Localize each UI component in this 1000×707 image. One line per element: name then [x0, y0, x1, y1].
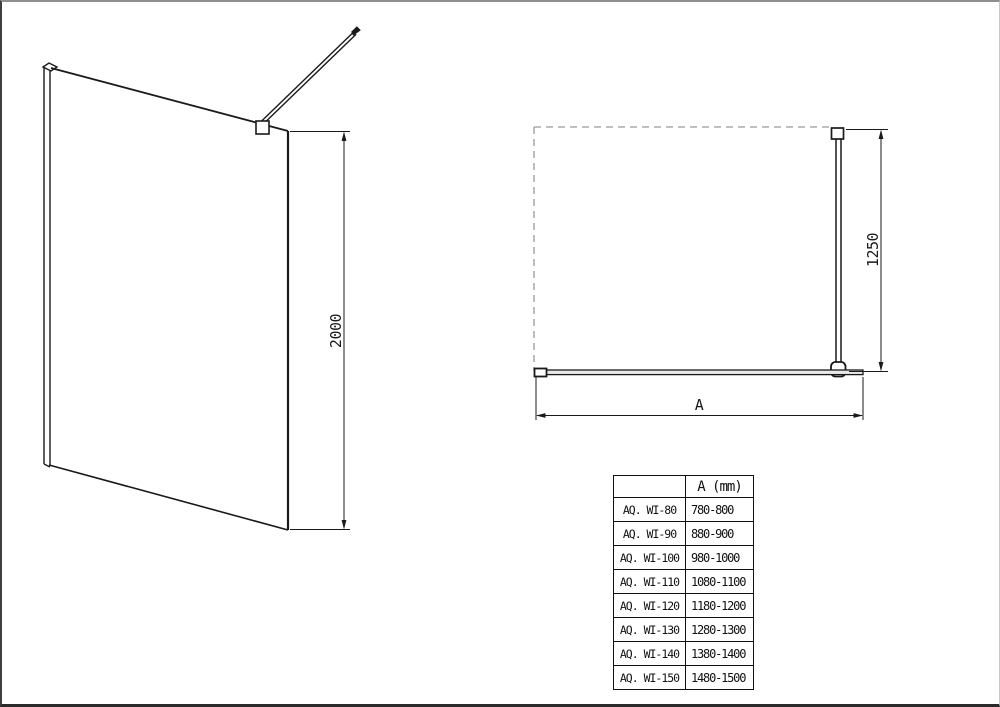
size-range-cell: 1280-1300: [686, 618, 754, 642]
size-range-cell: 1380-1400: [686, 642, 754, 666]
height-dimension-label: 2000: [327, 313, 345, 348]
table-row: AQ. WI-90880-900: [614, 522, 754, 546]
wall-mount-cap: [832, 128, 844, 139]
width-dimension: A: [536, 377, 863, 420]
size-table-grid: A (mm) AQ. WI-80780-800AQ. WI-90880-900A…: [613, 475, 754, 690]
size-range-cell: 780-800: [686, 498, 754, 522]
glass-panel-plan: [535, 369, 864, 377]
size-header-cell: A (mm): [686, 476, 754, 498]
model-cell: AQ. WI-120: [614, 594, 686, 618]
model-header-cell: [614, 476, 686, 498]
table-header-row: A (mm): [614, 476, 754, 498]
model-cell: AQ. WI-110: [614, 570, 686, 594]
model-cell: AQ. WI-90: [614, 522, 686, 546]
dimension-arrow-down: [879, 362, 884, 372]
depth-dimension-label: 1250: [864, 232, 882, 267]
model-cell: AQ. WI-100: [614, 546, 686, 570]
technical-drawing-sheet: 2000 1250: [0, 0, 1000, 707]
table-row: AQ. WI-1501480-1500: [614, 666, 754, 690]
support-bar-plan: [831, 128, 846, 377]
table-row: AQ. WI-1301280-1300: [614, 618, 754, 642]
size-table: A (mm) AQ. WI-80780-800AQ. WI-90880-900A…: [613, 475, 754, 690]
depth-dimension: 1250: [846, 130, 888, 372]
model-cell: AQ. WI-80: [614, 498, 686, 522]
perspective-view: 2000: [43, 26, 361, 530]
dimension-arrow-up: [879, 130, 884, 140]
dimension-arrow-down: [342, 520, 347, 530]
dimension-arrow-left: [536, 413, 546, 418]
shower-area-dashed-outline: [534, 127, 830, 371]
size-range-cell: 980-1000: [686, 546, 754, 570]
glass-panel: [49, 68, 288, 530]
table-row: AQ. WI-100980-1000: [614, 546, 754, 570]
height-dimension: 2000: [290, 132, 350, 530]
drawing-canvas: 2000 1250: [0, 0, 1000, 707]
table-row: AQ. WI-1201180-1200: [614, 594, 754, 618]
size-range-cell: 1180-1200: [686, 594, 754, 618]
table-row: AQ. WI-1401380-1400: [614, 642, 754, 666]
wall-profile-plan-cap: [535, 369, 547, 377]
table-row: AQ. WI-80780-800: [614, 498, 754, 522]
size-range-cell: 1080-1100: [686, 570, 754, 594]
support-bar: [256, 26, 361, 134]
model-cell: AQ. WI-150: [614, 666, 686, 690]
size-table-body: AQ. WI-80780-800AQ. WI-90880-900AQ. WI-1…: [614, 498, 754, 690]
dimension-arrow-up: [342, 132, 347, 142]
dimension-arrow-right: [854, 413, 864, 418]
model-cell: AQ. WI-140: [614, 642, 686, 666]
support-bar-glass-connector: [256, 121, 269, 134]
model-cell: AQ. WI-130: [614, 618, 686, 642]
plan-view: 1250 A: [534, 127, 888, 420]
width-dimension-label: A: [695, 396, 704, 414]
size-range-cell: 1480-1500: [686, 666, 754, 690]
size-range-cell: 880-900: [686, 522, 754, 546]
table-row: AQ. WI-1101080-1100: [614, 570, 754, 594]
wall-profile: [43, 63, 57, 467]
